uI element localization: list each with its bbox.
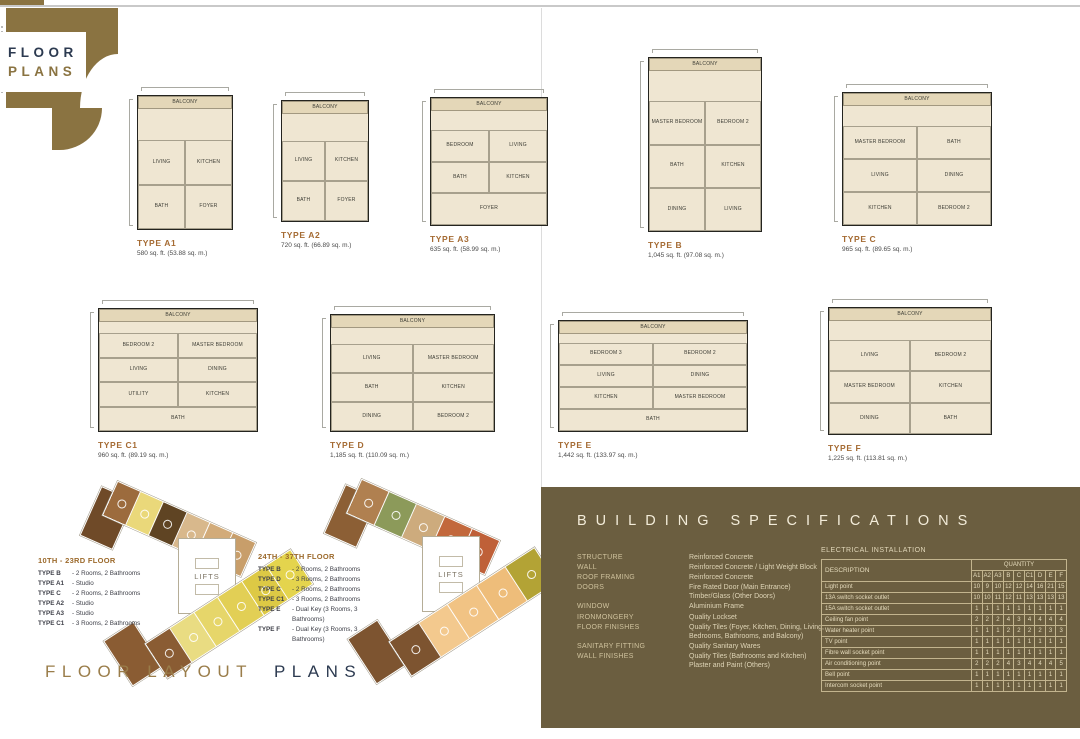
qty-cell: 1	[1045, 604, 1056, 615]
spec-label: WALL	[577, 563, 689, 572]
qty-cell: 1	[1003, 637, 1014, 648]
legend-title: 24TH - 37TH FLOOR	[258, 552, 386, 561]
spec-value-line: Quality Sanitary Wares	[689, 642, 825, 651]
qty-cell: 4	[1003, 659, 1014, 670]
spec-value-line: Quality Tiles (Foyer, Kitchen, Dining, L…	[689, 623, 825, 632]
room-label: LIVING	[489, 130, 547, 162]
floor-plans-logo: FLOOR PLANS	[6, 8, 118, 150]
qty-cell: 1	[1024, 648, 1035, 659]
legend-desc: - 3 Rooms, 2 Bathrooms	[72, 619, 166, 629]
room-label: MASTER BEDROOM	[178, 333, 257, 357]
plan-type-label: TYPE C	[842, 234, 992, 244]
spec-value: Quality Tiles (Bathrooms and Kitchen)Pla…	[689, 652, 825, 670]
qty-cell: 2	[1014, 626, 1025, 637]
legend-title: 10TH - 23RD FLOOR	[38, 556, 166, 565]
plan-area-label: 960 sq. ft. (89.19 sq. m.)	[98, 452, 258, 459]
legend-item: TYPE E- Dual Key (3 Rooms, 3 Bathrooms)	[258, 605, 386, 625]
legend-item: TYPE D- 3 Rooms, 2 Bathrooms	[258, 575, 386, 585]
floorplan-type-e: BALCONYBEDROOM 3BEDROOM 2LIVINGDININGKIT…	[558, 320, 748, 459]
spec-value-line: Plaster and Paint (Others)	[689, 661, 825, 670]
qty-cell: 4	[1035, 659, 1046, 670]
room-label: BEDROOM 2	[99, 333, 178, 357]
row-label: Ceiling fan point	[822, 615, 972, 626]
monogram-curve	[40, 108, 52, 150]
spec-item: WALL FINISHESQuality Tiles (Bathrooms an…	[577, 652, 825, 670]
qty-cell: 1	[972, 637, 983, 648]
qty-cell: 1	[972, 681, 983, 692]
unit-col-header: E	[1045, 571, 1056, 582]
plan-type-label: TYPE A2	[281, 230, 369, 240]
plan-type-label: TYPE A1	[137, 238, 233, 248]
unit-marker	[418, 522, 430, 534]
qty-cell: 1	[1003, 681, 1014, 692]
room-label: BATH	[99, 407, 257, 431]
qty-cell: 1	[1045, 637, 1056, 648]
room-label: KITCHEN	[843, 192, 917, 225]
qty-cell: 3	[1045, 626, 1056, 637]
table-row: 15A switch socket outlet111111111	[822, 604, 1067, 615]
legend-type: TYPE A2	[38, 599, 72, 609]
legend-desc: - Studio	[72, 599, 166, 609]
spec-item: SANITARY FITTINGQuality Sanitary Wares	[577, 642, 825, 651]
qty-cell: 1	[1003, 670, 1014, 681]
floorplan-type-a3: BALCONYBEDROOMLIVINGBATHKITCHENFOYER TYP…	[430, 97, 548, 253]
qty-cell: 1	[1014, 670, 1025, 681]
spec-label: WALL FINISHES	[577, 652, 689, 670]
legend-item: TYPE F- Dual Key (3 Rooms, 3 Bathrooms)	[258, 625, 386, 645]
legend-24-37-floor: 24TH - 37TH FLOOR TYPE B- 2 Rooms, 2 Bat…	[258, 552, 386, 646]
room-label: MASTER BEDROOM	[413, 344, 495, 373]
spec-value-line: Timber/Glass (Other Doors)	[689, 592, 825, 601]
row-label: Intercom socket point	[822, 681, 972, 692]
room-label: FOYER	[185, 185, 232, 229]
room-label: MASTER BEDROOM	[653, 387, 747, 409]
qty-cell: 4	[1024, 659, 1035, 670]
room-label: BALCONY	[649, 58, 761, 71]
unit-marker	[162, 519, 174, 531]
row-label: Bell point	[822, 670, 972, 681]
room-label: MASTER BEDROOM	[843, 126, 917, 159]
logo-word-floor: FLOOR	[8, 45, 86, 60]
room-label: KITCHEN	[325, 141, 368, 181]
floorplan-drawing: BALCONYLIVINGMASTER BEDROOMBATHKITCHENDI…	[330, 314, 495, 432]
qty-cell: 1	[1035, 637, 1046, 648]
qty-cell: 1	[972, 648, 983, 659]
qty-cell: 9	[982, 582, 993, 593]
qty-cell: 1	[1014, 637, 1025, 648]
plan-type-label: TYPE C1	[98, 440, 258, 450]
legend-desc: - 3 Rooms, 2 Bathrooms	[292, 595, 386, 605]
legend-desc: - 2 Rooms, 2 Bathrooms	[292, 585, 386, 595]
room-label: LIVING	[843, 159, 917, 192]
room-label: BEDROOM 2	[705, 101, 761, 144]
floorplan-type-a1: BALCONYLIVINGKITCHENBATHFOYER TYPE A1 58…	[137, 95, 233, 257]
plan-area-label: 965 sq. ft. (89.65 sq. m.)	[842, 246, 992, 253]
room-label: LIVING	[331, 344, 413, 373]
qty-cell: 12	[1003, 593, 1014, 604]
room-label: LIVING	[138, 140, 185, 184]
room-label: KITCHEN	[185, 140, 232, 184]
unit-marker	[211, 616, 223, 628]
table-header-row: DESCRIPTIONQUANTITY	[822, 560, 1067, 571]
qty-cell: 5	[1056, 659, 1067, 670]
room-label: BATH	[559, 409, 747, 431]
unit-marker	[139, 508, 151, 520]
row-label: Fibre wall socket point	[822, 648, 972, 659]
room-label: BATH	[138, 185, 185, 229]
room-label: LIVING	[705, 188, 761, 231]
floorplan-drawing: BALCONYMASTER BEDROOMBEDROOM 2BATHKITCHE…	[648, 57, 762, 232]
spec-label: ROOF FRAMING	[577, 573, 689, 582]
qty-cell: 4	[1003, 615, 1014, 626]
table-row: TV point111111111	[822, 637, 1067, 648]
room-label: BATH	[431, 162, 489, 194]
lifts-label: LIFTS	[438, 570, 463, 579]
spec-value: Reinforced Concrete / Light Weight Block	[689, 563, 825, 572]
spec-item: FLOOR FINISHESQuality Tiles (Foyer, Kitc…	[577, 623, 825, 641]
qty-cell: 13	[1045, 593, 1056, 604]
legend-type: TYPE F	[258, 625, 292, 645]
table-row: Ceiling fan point222434444	[822, 615, 1067, 626]
legend-item: TYPE C1- 3 Rooms, 2 Bathrooms	[38, 619, 166, 629]
qty-cell: 3	[1056, 626, 1067, 637]
qty-cell: 12	[1014, 582, 1025, 593]
unit-marker	[525, 568, 537, 580]
room-label: FOYER	[325, 181, 368, 221]
qty-cell: 1	[1035, 681, 1046, 692]
legend-item: TYPE B- 2 Rooms, 2 Bathrooms	[258, 565, 386, 575]
qty-cell: 1	[982, 670, 993, 681]
footer-title-gold: FLOOR LAYOUT	[45, 662, 253, 681]
plan-area-label: 1,442 sq. ft. (133.97 sq. m.)	[558, 452, 748, 459]
spec-value-line: Reinforced Concrete	[689, 553, 825, 562]
qty-cell: 1	[982, 648, 993, 659]
legend-item: TYPE A2- Studio	[38, 599, 166, 609]
room-label: MASTER BEDROOM	[649, 101, 705, 144]
room-label: KITCHEN	[413, 373, 495, 402]
unit-col-header: B	[1003, 571, 1014, 582]
lifts-label: LIFTS	[194, 572, 219, 581]
qty-cell: 1	[993, 670, 1004, 681]
qty-cell: 1	[982, 604, 993, 615]
floorplan-drawing: BALCONYLIVINGKITCHENBATHFOYER	[137, 95, 233, 230]
unit-marker	[390, 509, 402, 521]
building-specifications-panel: BUILDING SPECIFICATIONS STRUCTUREReinfor…	[541, 487, 1080, 728]
legend-10-23-floor: 10TH - 23RD FLOOR TYPE B- 2 Rooms, 2 Bat…	[38, 556, 166, 629]
spec-value-line: Reinforced Concrete / Light Weight Block	[689, 563, 825, 572]
room-label: BATH	[649, 145, 705, 188]
legend-type: TYPE C	[38, 589, 72, 599]
qty-cell: 1	[1035, 604, 1046, 615]
legend-desc: - Dual Key (3 Rooms, 3 Bathrooms)	[292, 605, 386, 625]
room-label: BALCONY	[843, 93, 991, 106]
qty-cell: 2	[982, 659, 993, 670]
spec-value-line: Reinforced Concrete	[689, 573, 825, 582]
top-divider-line	[0, 5, 1080, 7]
qty-cell: 1	[993, 626, 1004, 637]
spec-value-line: Fire Rated Door (Main Entrance)	[689, 583, 825, 592]
plan-area-label: 1,185 sq. ft. (110.09 sq. m.)	[330, 452, 495, 459]
plan-area-label: 1,045 sq. ft. (97.08 sq. m.)	[648, 252, 762, 259]
room-label: DINING	[649, 188, 705, 231]
row-label: 15A switch socket outlet	[822, 604, 972, 615]
plan-type-label: TYPE A3	[430, 234, 548, 244]
room-label: KITCHEN	[705, 145, 761, 188]
legend-desc: - Dual Key (3 Rooms, 3 Bathrooms)	[292, 625, 386, 645]
plan-area-label: 720 sq. ft. (66.89 sq. m.)	[281, 242, 369, 249]
qty-cell: 1	[1056, 604, 1067, 615]
room-label: BEDROOM 2	[413, 402, 495, 431]
electrical-title: ELECTRICAL INSTALLATION	[821, 547, 1067, 554]
qty-cell: 2	[972, 659, 983, 670]
monogram-stem	[52, 108, 102, 150]
room-label: BATH	[282, 181, 325, 221]
qty-cell: 1	[1045, 648, 1056, 659]
qty-cell: 10	[972, 582, 983, 593]
specs-list: STRUCTUREReinforced ConcreteWALLReinforc…	[577, 553, 825, 671]
legend-item: TYPE B- 2 Rooms, 2 Bathrooms	[38, 569, 166, 579]
plan-type-label: TYPE B	[648, 240, 762, 250]
unit-marker	[236, 600, 248, 612]
room-label: LIVING	[829, 340, 910, 372]
unit-marker	[362, 497, 374, 509]
qty-cell: 1	[1003, 604, 1014, 615]
legend-type: TYPE A3	[38, 609, 72, 619]
qty-cell: 4	[1024, 615, 1035, 626]
qty-cell: 15	[1056, 582, 1067, 593]
spec-label: WINDOW	[577, 602, 689, 611]
floorplan-drawing: BALCONYBEDROOM 2MASTER BEDROOMLIVINGDINI…	[98, 308, 258, 432]
room-label: BALCONY	[829, 308, 991, 321]
spec-label: STRUCTURE	[577, 553, 689, 562]
qty-cell: 2	[972, 615, 983, 626]
legend-item: TYPE A1- Studio	[38, 579, 166, 589]
qty-cell: 1	[1056, 670, 1067, 681]
legend-type: TYPE C	[258, 585, 292, 595]
plan-type-label: TYPE E	[558, 440, 748, 450]
table-row: Air conditioning point222434445	[822, 659, 1067, 670]
qty-cell: 13	[1056, 593, 1067, 604]
brochure-page: FLOOR PLANS BALCONYLIVINGKITCHENBATHFOYE…	[0, 0, 1080, 739]
room-label: BATH	[917, 126, 991, 159]
unit-col-header: A3	[993, 571, 1004, 582]
room-label: BALCONY	[559, 321, 747, 334]
room-label: BATH	[910, 403, 991, 435]
qty-cell: 4	[1056, 615, 1067, 626]
legend-item: TYPE C- 2 Rooms, 2 Bathrooms	[258, 585, 386, 595]
room-label: BEDROOM 3	[559, 343, 653, 365]
floorplan-type-a2: BALCONYLIVINGKITCHENBATHFOYER TYPE A2 72…	[281, 100, 369, 249]
qty-cell: 11	[993, 593, 1004, 604]
plan-type-label: TYPE F	[828, 443, 992, 453]
legend-type: TYPE B	[258, 565, 292, 575]
floorplan-type-b: BALCONYMASTER BEDROOMBEDROOM 2BATHKITCHE…	[648, 57, 762, 259]
room-label: DINING	[331, 402, 413, 431]
plan-area-label: 1,225 sq. ft. (113.81 sq. m.)	[828, 455, 992, 462]
qty-cell: 13	[1035, 593, 1046, 604]
legend-desc: - 3 Rooms, 2 Bathrooms	[292, 575, 386, 585]
qty-cell: 1	[1014, 604, 1025, 615]
room-label: BEDROOM 2	[917, 192, 991, 225]
floorplan-type-d: BALCONYLIVINGMASTER BEDROOMBATHKITCHENDI…	[330, 314, 495, 459]
qty-cell: 1	[1056, 637, 1067, 648]
qty-cell: 4	[1035, 615, 1046, 626]
table-row: Water heater point111222233	[822, 626, 1067, 637]
qty-cell: 2	[1035, 626, 1046, 637]
table-row: Fibre wall socket point111111111	[822, 648, 1067, 659]
row-label: Light point	[822, 582, 972, 593]
table-row: Intercom socket point111111111	[822, 681, 1067, 692]
qty-cell: 21	[1045, 582, 1056, 593]
spec-value: Reinforced Concrete	[689, 553, 825, 562]
spec-value: Quality Sanitary Wares	[689, 642, 825, 651]
logo-label: FLOOR PLANS	[0, 32, 86, 92]
unit-marker	[496, 587, 508, 599]
qty-cell: 1	[1035, 648, 1046, 659]
legend-desc: - 2 Rooms, 2 Bathrooms	[72, 589, 166, 599]
spec-value-line: Aluminium Frame	[689, 602, 825, 611]
spec-value: Reinforced Concrete	[689, 573, 825, 582]
legend-type: TYPE B	[38, 569, 72, 579]
qty-cell: 1	[1045, 670, 1056, 681]
unit-marker	[467, 606, 479, 618]
legend-desc: - Studio	[72, 579, 166, 589]
qty-cell: 1	[993, 648, 1004, 659]
legend-type: TYPE D	[258, 575, 292, 585]
qty-cell: 1	[1003, 648, 1014, 659]
unit-marker	[438, 625, 450, 637]
room-label: FOYER	[431, 193, 547, 225]
qty-cell: 1	[982, 681, 993, 692]
qty-cell: 1	[993, 681, 1004, 692]
qty-cell: 2	[1024, 626, 1035, 637]
specs-title: BUILDING SPECIFICATIONS	[577, 513, 976, 529]
electrical-table: DESCRIPTIONQUANTITYA1A2A3BCC1DEFLight po…	[821, 559, 1067, 692]
qty-cell: 10	[972, 593, 983, 604]
qty-cell: 2	[982, 615, 993, 626]
qty-cell: 1	[1056, 681, 1067, 692]
room-label: KITCHEN	[910, 371, 991, 403]
unit-marker	[187, 631, 199, 643]
table-row: 13A switch socket outlet1010111211131313…	[822, 593, 1067, 604]
floorplan-drawing: BALCONYBEDROOM 3BEDROOM 2LIVINGDININGKIT…	[558, 320, 748, 432]
qty-cell: 4	[1045, 659, 1056, 670]
qty-cell: 10	[982, 593, 993, 604]
spec-item: WALLReinforced Concrete / Light Weight B…	[577, 563, 825, 572]
spec-item: DOORSFire Rated Door (Main Entrance)Timb…	[577, 583, 825, 601]
spec-label: SANITARY FITTING	[577, 642, 689, 651]
qty-cell: 16	[1035, 582, 1046, 593]
room-label: BEDROOM 2	[910, 340, 991, 372]
qty-cell: 1	[972, 670, 983, 681]
qty-cell: 1	[972, 626, 983, 637]
unit-marker	[116, 498, 128, 510]
room-label: BALCONY	[431, 98, 547, 111]
footer-title-navy: PLANS	[274, 662, 362, 681]
qty-cell: 1	[993, 604, 1004, 615]
room-label: DINING	[653, 365, 747, 387]
legend-desc: - 2 Rooms, 2 Bathrooms	[292, 565, 386, 575]
qty-cell: 12	[1003, 582, 1014, 593]
qty-cell: 1	[1014, 681, 1025, 692]
spec-value: Aluminium Frame	[689, 602, 825, 611]
qty-cell: 1	[1024, 604, 1035, 615]
electrical-installation: ELECTRICAL INSTALLATION DESCRIPTIONQUANT…	[821, 547, 1067, 692]
floorplan-drawing: BALCONYMASTER BEDROOMBATHLIVINGDININGKIT…	[842, 92, 992, 226]
room-label: BALCONY	[99, 309, 257, 322]
spec-label: DOORS	[577, 583, 689, 601]
qty-cell: 3	[1014, 659, 1025, 670]
spec-value-line: Quality Lockset	[689, 613, 825, 622]
unit-col-header: C	[1014, 571, 1025, 582]
qty-cell: 1	[972, 604, 983, 615]
room-label: LIVING	[282, 141, 325, 181]
floorplan-type-c1: BALCONYBEDROOM 2MASTER BEDROOMLIVINGDINI…	[98, 308, 258, 459]
plan-type-label: TYPE D	[330, 440, 495, 450]
qty-cell: 2	[1003, 626, 1014, 637]
room-label: KITCHEN	[489, 162, 547, 194]
spec-item: IRONMONGERYQuality Lockset	[577, 613, 825, 622]
room-label: KITCHEN	[178, 382, 257, 406]
qty-cell: 10	[993, 582, 1004, 593]
floorplan-type-c: BALCONYMASTER BEDROOMBATHLIVINGDININGKIT…	[842, 92, 992, 253]
legend-desc: - 2 Rooms, 2 Bathrooms	[72, 569, 166, 579]
legend-type: TYPE E	[258, 605, 292, 625]
quantity-header: QUANTITY	[972, 560, 1067, 571]
qty-cell: 1	[1024, 670, 1035, 681]
table-row: Bell point111111111	[822, 670, 1067, 681]
electrical-table-grid: DESCRIPTIONQUANTITYA1A2A3BCC1DEFLight po…	[821, 559, 1067, 692]
room-label: MASTER BEDROOM	[829, 371, 910, 403]
room-label: BALCONY	[282, 101, 368, 114]
qty-cell: 2	[993, 615, 1004, 626]
spec-item: WINDOWAluminium Frame	[577, 602, 825, 611]
floorplan-drawing: BALCONYLIVINGKITCHENBATHFOYER	[281, 100, 369, 222]
unit-marker	[163, 647, 175, 659]
floorplan-drawing: BALCONYBEDROOMLIVINGBATHKITCHENFOYER	[430, 97, 548, 226]
spec-value-line: Bedrooms, Bathrooms, and Balcony)	[689, 632, 825, 641]
room-label: BALCONY	[138, 96, 232, 109]
room-label: DINING	[917, 159, 991, 192]
unit-col-header: F	[1056, 571, 1067, 582]
footer-title: FLOOR LAYOUT PLANS	[45, 662, 362, 682]
unit-col-header: A1	[972, 571, 983, 582]
qty-cell: 3	[1014, 615, 1025, 626]
floorplan-type-f: BALCONYLIVINGBEDROOM 2MASTER BEDROOMKITC…	[828, 307, 992, 462]
qty-cell: 13	[1024, 593, 1035, 604]
legend-item: TYPE C1- 3 Rooms, 2 Bathrooms	[258, 595, 386, 605]
qty-cell: 1	[1024, 637, 1035, 648]
spec-item: ROOF FRAMINGReinforced Concrete	[577, 573, 825, 582]
table-row: Light point10910121214162115	[822, 582, 1067, 593]
room-label: DINING	[178, 358, 257, 382]
room-label: BEDROOM 2	[653, 343, 747, 365]
spec-label: FLOOR FINISHES	[577, 623, 689, 641]
qty-cell: 1	[982, 626, 993, 637]
plan-area-label: 635 sq. ft. (58.99 sq. m.)	[430, 246, 548, 253]
spec-value: Fire Rated Door (Main Entrance)Timber/Gl…	[689, 583, 825, 601]
qty-cell: 14	[1024, 582, 1035, 593]
legend-desc: - Studio	[72, 609, 166, 619]
row-label: Water heater point	[822, 626, 972, 637]
unit-col-header: C1	[1024, 571, 1035, 582]
unit-marker	[409, 644, 421, 656]
room-label: BEDROOM	[431, 130, 489, 162]
room-label: LIVING	[99, 358, 178, 382]
qty-cell: 1	[1024, 681, 1035, 692]
spec-label: IRONMONGERY	[577, 613, 689, 622]
room-label: BALCONY	[331, 315, 494, 328]
